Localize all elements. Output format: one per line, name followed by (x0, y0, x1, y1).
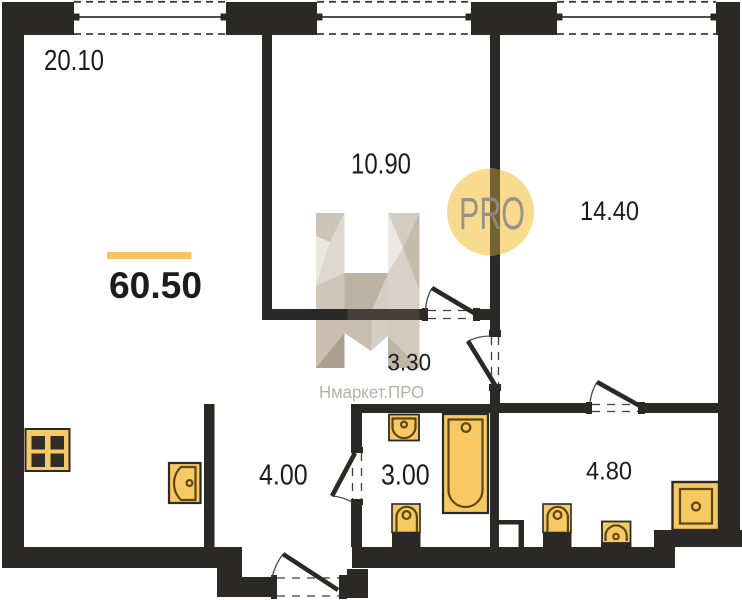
svg-text:3.00: 3.00 (381, 460, 430, 492)
svg-text:PRO: PRO (459, 188, 525, 239)
svg-text:3.30: 3.30 (388, 349, 432, 376)
svg-text:Нмаркет.ПРО: Нмаркет.ПРО (319, 382, 424, 402)
svg-text:20.10: 20.10 (44, 45, 104, 77)
svg-text:14.40: 14.40 (580, 196, 639, 226)
svg-text:4.80: 4.80 (586, 458, 632, 486)
svg-text:60.50: 60.50 (109, 265, 202, 306)
svg-text:4.00: 4.00 (259, 460, 308, 492)
svg-text:10.90: 10.90 (351, 149, 411, 181)
